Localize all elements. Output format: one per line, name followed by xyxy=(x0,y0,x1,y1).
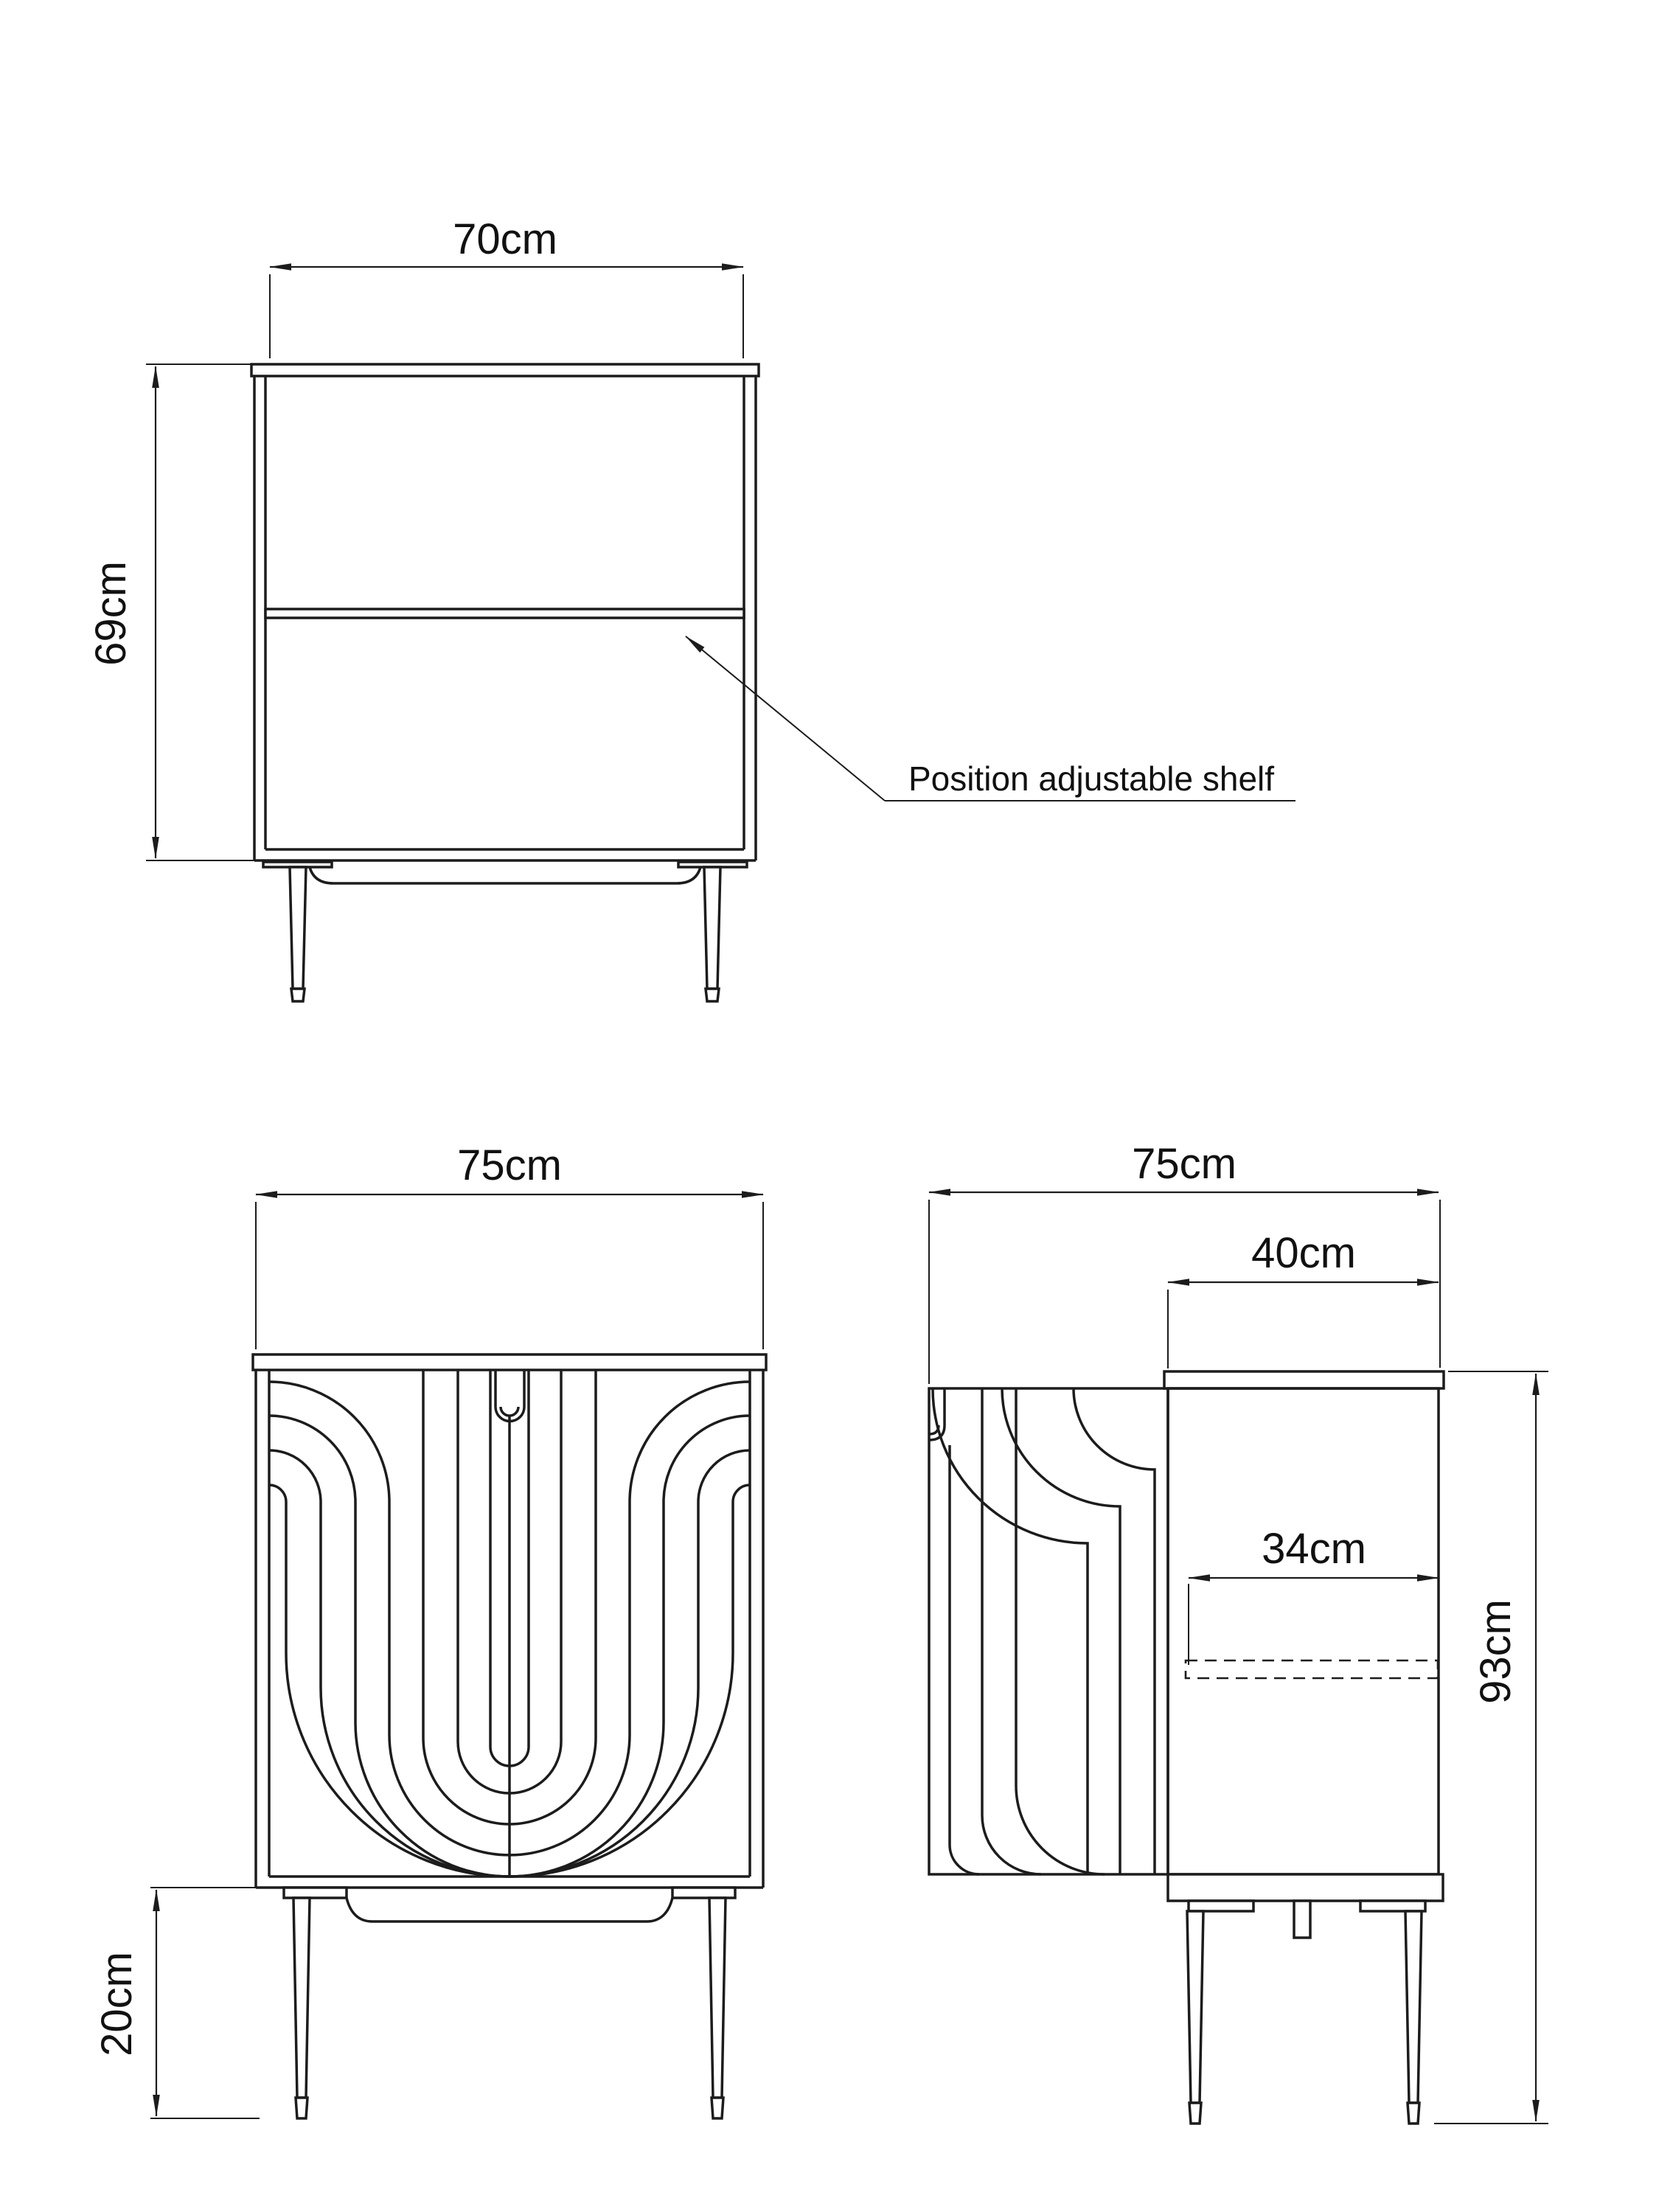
front-view: 75cm 20cm xyxy=(93,1141,766,2118)
dim-label-top-height: 69cm xyxy=(87,561,135,666)
front-left-leg xyxy=(293,1898,310,2098)
dim-label-front-leg-height: 20cm xyxy=(93,1952,141,2056)
arc-line xyxy=(933,1388,1088,1874)
front-stretcher-bar xyxy=(347,1898,672,1921)
dim-front-leg-height: 20cm xyxy=(93,1888,260,2118)
technical-drawing-canvas: 70cm 69cm Position adjustable shelf xyxy=(0,0,1659,2212)
dim-label-shelf-depth: 34cm xyxy=(1262,1525,1366,1573)
front-left-foot xyxy=(296,2098,307,2118)
side-base-bar xyxy=(1168,1874,1443,1901)
side-back-foot-pad xyxy=(1360,1901,1425,1911)
adjustable-shelf xyxy=(265,609,744,618)
dim-label-side-height: 93cm xyxy=(1472,1599,1520,1704)
arc-line xyxy=(982,1388,1041,1874)
top-view-top-panel xyxy=(251,364,759,376)
dim-top-height: 69cm xyxy=(87,364,260,860)
front-right-foot xyxy=(712,2098,723,2118)
front-right-leg xyxy=(709,1898,726,2098)
side-front-foot-pad xyxy=(1189,1901,1253,1911)
side-top-panel xyxy=(1164,1371,1444,1388)
arc-line xyxy=(1074,1388,1155,1874)
front-left-foot-pad xyxy=(284,1888,347,1898)
dim-label-top-width: 70cm xyxy=(453,215,557,263)
arc-line xyxy=(1016,1388,1105,1874)
drawing-page: 70cm 69cm Position adjustable shelf xyxy=(0,0,1659,2212)
dim-label-side-width: 75cm xyxy=(1132,1140,1237,1188)
top-view-left-foot xyxy=(291,989,305,1001)
dim-label-front-width: 75cm xyxy=(457,1141,562,1189)
door-arc-pattern xyxy=(269,1370,750,1877)
dim-top-width: 70cm xyxy=(270,215,743,358)
dashed-shelf xyxy=(1186,1660,1438,1678)
side-door-outline xyxy=(929,1388,1168,1874)
side-view: 75cm 40cm 34cm 93cm xyxy=(929,1140,1548,2124)
dim-side-height: 93cm xyxy=(1434,1371,1548,2124)
side-door-fragment xyxy=(929,1388,1168,1874)
top-view: 70cm 69cm Position adjustable shelf xyxy=(87,215,1295,1001)
top-view-right-leg xyxy=(704,867,720,989)
side-back-foot xyxy=(1408,2103,1419,2124)
top-view-left-leg xyxy=(290,867,306,989)
top-view-right-foot xyxy=(706,989,719,1001)
dim-label-side-depth: 40cm xyxy=(1251,1229,1356,1277)
side-center-support xyxy=(1294,1901,1310,1938)
dim-shelf-depth: 34cm xyxy=(1189,1525,1439,1665)
arc-line xyxy=(1002,1388,1120,1874)
leader-arrow xyxy=(686,636,885,801)
side-front-foot xyxy=(1189,2103,1201,2124)
side-front-leg xyxy=(1187,1911,1203,2103)
dim-front-width: 75cm xyxy=(256,1141,763,1349)
front-top-panel xyxy=(253,1354,766,1370)
arc-line xyxy=(950,1445,979,1874)
dim-side-depth: 40cm xyxy=(1168,1229,1439,1368)
shelf-annotation: Position adjustable shelf xyxy=(686,636,1295,801)
top-view-stretcher-bar xyxy=(310,867,700,883)
shelf-note-text: Position adjustable shelf xyxy=(908,759,1274,798)
front-right-foot-pad xyxy=(672,1888,735,1898)
side-panel-outline xyxy=(1168,1388,1439,1874)
dim-side-width: 75cm xyxy=(929,1140,1440,1384)
side-back-leg xyxy=(1405,1911,1422,2103)
handle-notch xyxy=(501,1407,518,1416)
